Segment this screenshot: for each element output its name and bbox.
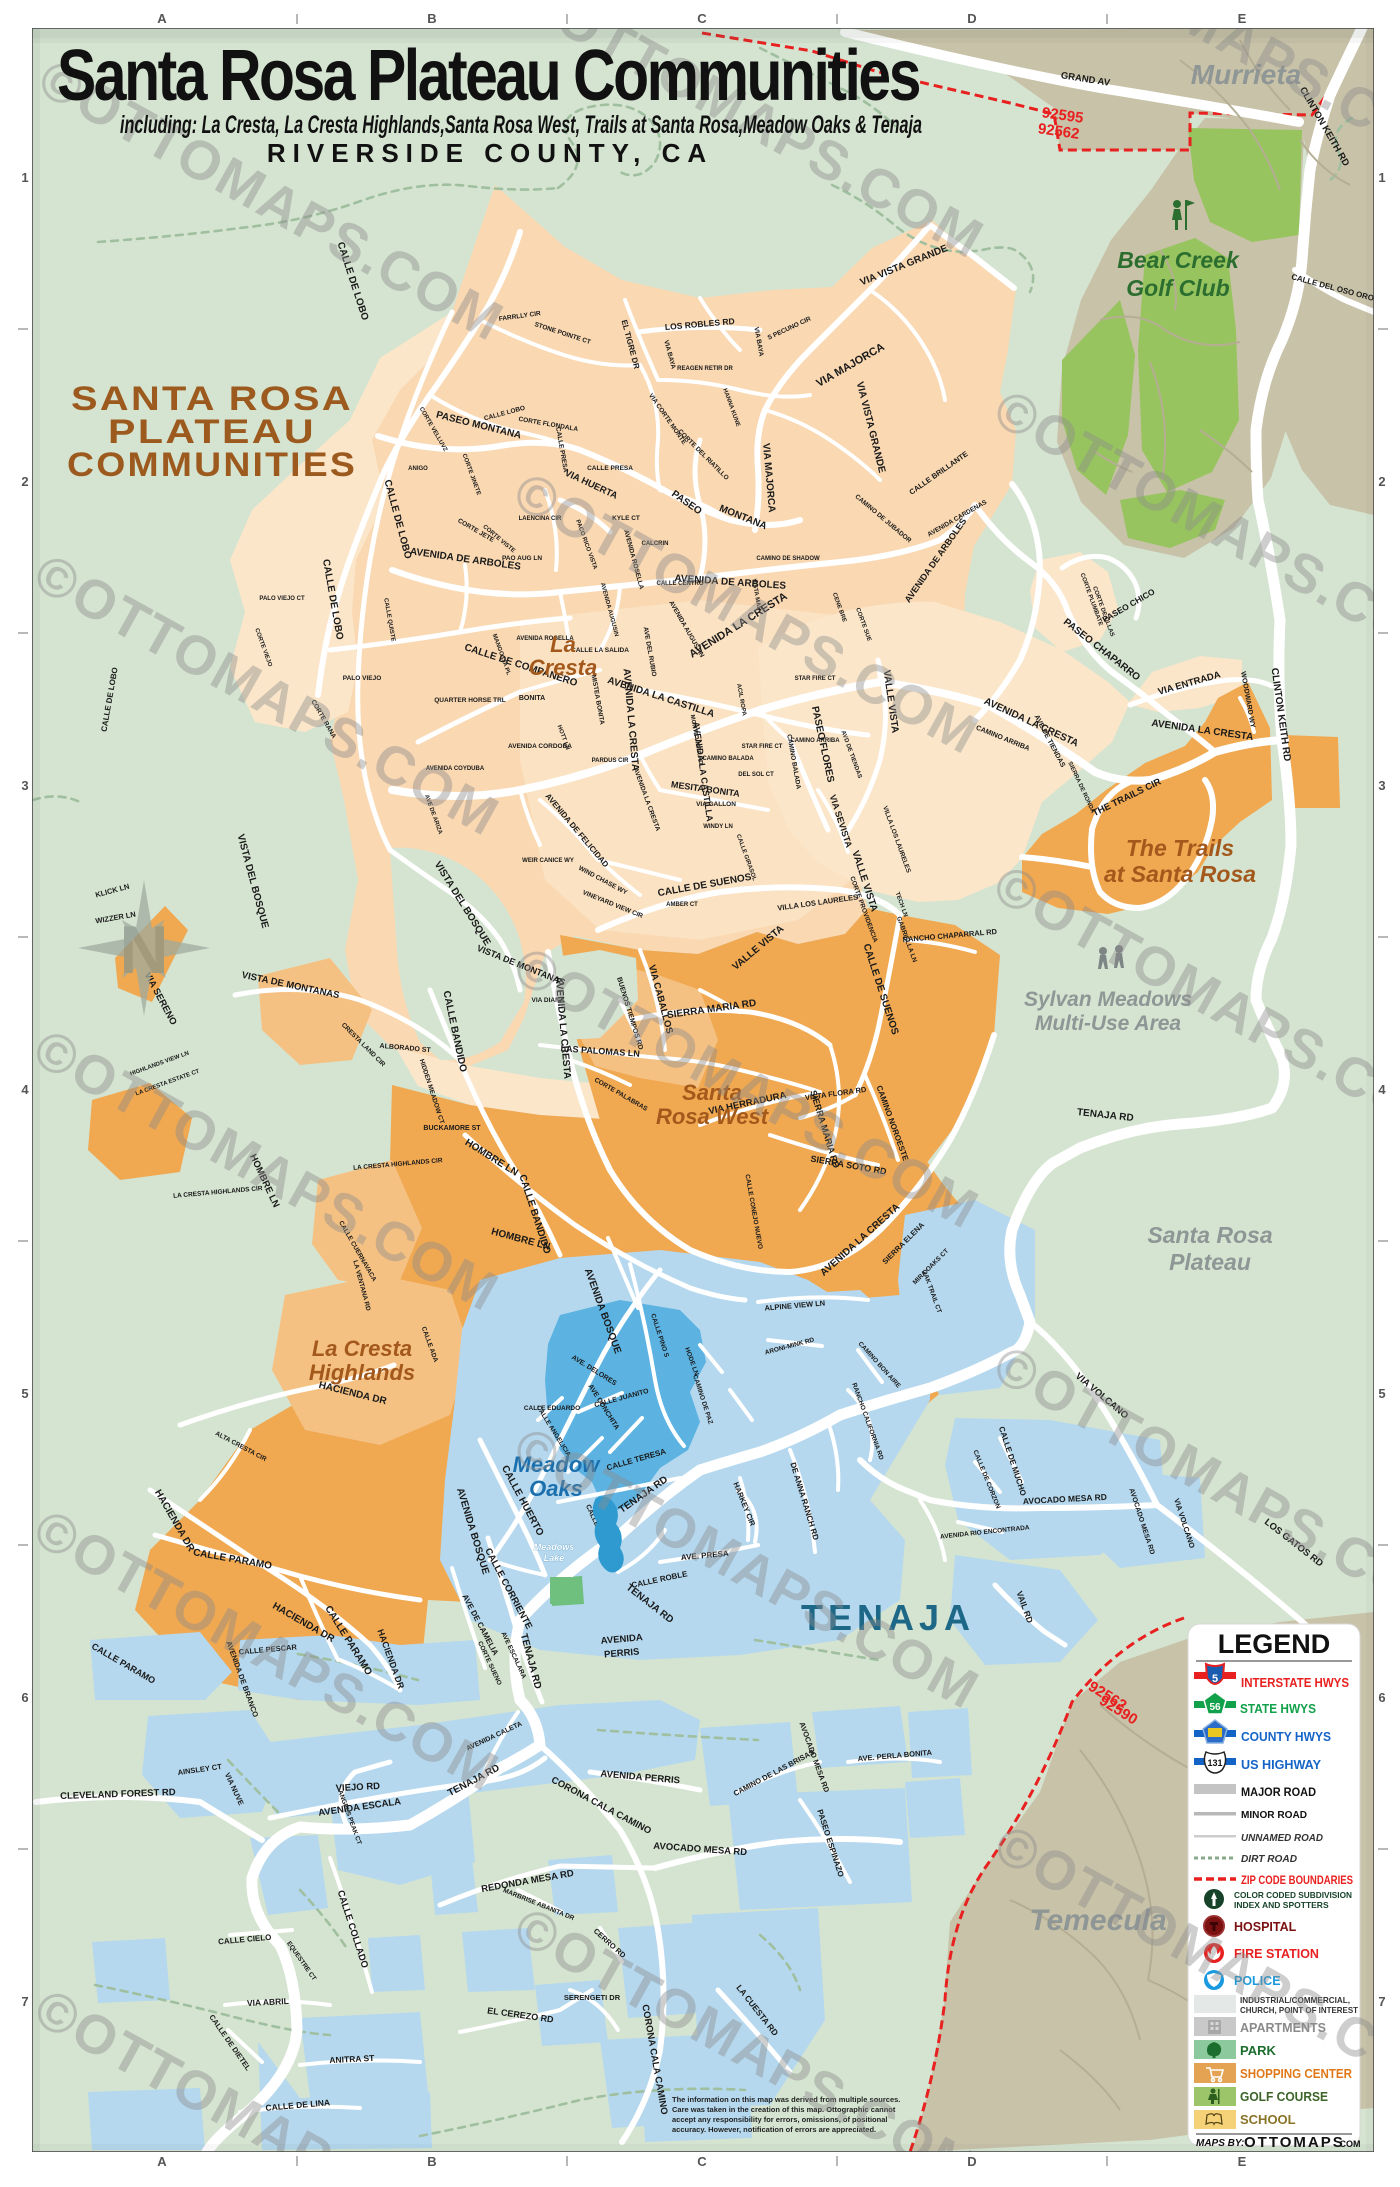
svg-text:Santa Rosa Plateau Communities: Santa Rosa Plateau Communities — [57, 36, 920, 116]
svg-text:CAMINO ARRIBA: CAMINO ARRIBA — [790, 738, 840, 744]
svg-text:PAO AUG LN: PAO AUG LN — [502, 555, 542, 562]
svg-text:1: 1 — [21, 170, 28, 185]
svg-text:N: N — [119, 912, 168, 988]
svg-text:7: 7 — [21, 1994, 28, 2009]
svg-text:CAMINO DE SHADOW: CAMINO DE SHADOW — [756, 556, 820, 562]
svg-text:A: A — [157, 11, 167, 26]
svg-text:STAR FIRE CT: STAR FIRE CT — [742, 744, 783, 750]
svg-text:WEIR CANICE WY: WEIR CANICE WY — [522, 858, 574, 864]
svg-text:ZIP CODE BOUNDARIES: ZIP CODE BOUNDARIES — [1241, 1875, 1353, 1887]
svg-text:PARDUS CIR: PARDUS CIR — [592, 758, 630, 764]
svg-text:MAJOR ROAD: MAJOR ROAD — [1241, 1787, 1316, 1799]
svg-text:7: 7 — [1378, 1994, 1385, 2009]
svg-text:PALO VIEJO: PALO VIEJO — [343, 675, 382, 682]
svg-text:C: C — [697, 11, 707, 26]
svg-text:REAGEN RETIR DR: REAGEN RETIR DR — [677, 366, 733, 372]
svg-text:HOSPITAL: HOSPITAL — [1234, 1920, 1297, 1934]
svg-text:E: E — [1238, 11, 1247, 26]
svg-text:COLOR CODED SUBDIVISION: COLOR CODED SUBDIVISION — [1234, 1890, 1352, 1900]
svg-text:GOLF COURSE: GOLF COURSE — [1240, 2090, 1328, 2104]
svg-text:Highlands: Highlands — [309, 1360, 415, 1385]
svg-text:Multi-Use Area: Multi-Use Area — [1035, 1012, 1182, 1035]
svg-text:La Cresta: La Cresta — [312, 1336, 412, 1361]
svg-text:CAMINO BALADA: CAMINO BALADA — [702, 756, 754, 762]
svg-text:LEGEND: LEGEND — [1218, 1629, 1331, 1659]
svg-text:PARK: PARK — [1240, 2043, 1276, 2058]
svg-text:4: 4 — [1378, 1082, 1386, 1097]
svg-text:E: E — [1238, 2154, 1247, 2169]
svg-text:6: 6 — [1378, 1690, 1385, 1705]
svg-text:56: 56 — [1209, 1702, 1221, 1713]
svg-text:DEL SOL CT: DEL SOL CT — [738, 772, 774, 778]
svg-text:6: 6 — [21, 1690, 28, 1705]
svg-text:1: 1 — [1378, 170, 1385, 185]
svg-text:3: 3 — [1378, 778, 1385, 793]
svg-text:5: 5 — [1378, 1386, 1385, 1401]
svg-text:UNNAMED ROAD: UNNAMED ROAD — [1241, 1832, 1323, 1844]
svg-text:B: B — [427, 11, 436, 26]
svg-text:D: D — [967, 2154, 976, 2169]
svg-text:5: 5 — [21, 1386, 28, 1401]
svg-text:Cresta: Cresta — [529, 655, 597, 680]
svg-text:COMMUNITIES: COMMUNITIES — [67, 446, 357, 484]
svg-text:CALLE EDUARDO: CALLE EDUARDO — [524, 1405, 580, 1412]
svg-text:including: La Cresta, La Crest: including: La Cresta, La Cresta Highland… — [120, 111, 922, 139]
svg-text:RIVERSIDE COUNTY, CA: RIVERSIDE COUNTY, CA — [267, 138, 713, 168]
svg-text:BUCKAMORE ST: BUCKAMORE ST — [423, 1125, 481, 1132]
svg-text:C: C — [697, 2154, 707, 2169]
svg-text:131: 131 — [1207, 1758, 1222, 1768]
svg-text:COUNTY HWYS: COUNTY HWYS — [1241, 1730, 1331, 1744]
svg-text:3: 3 — [21, 778, 28, 793]
svg-text:5: 5 — [1212, 1673, 1218, 1685]
svg-text:at Santa Rosa: at Santa Rosa — [1104, 861, 1256, 887]
svg-text:Santa Rosa: Santa Rosa — [1147, 1222, 1272, 1248]
svg-text:Lake: Lake — [544, 1553, 565, 1563]
svg-text:INDEX AND SPOTTERS: INDEX AND SPOTTERS — [1234, 1900, 1329, 1910]
svg-text:Bear Creek: Bear Creek — [1117, 247, 1240, 273]
svg-text:BONITA: BONITA — [519, 695, 545, 702]
svg-text:PALO VIEJO CT: PALO VIEJO CT — [259, 596, 305, 602]
svg-text:AMBER CT: AMBER CT — [666, 902, 698, 908]
svg-text:Golf Club: Golf Club — [1126, 275, 1229, 301]
svg-text:B: B — [427, 2154, 436, 2169]
svg-text:The Trails: The Trails — [1126, 835, 1234, 861]
svg-text:D: D — [967, 11, 976, 26]
svg-text:DIRT ROAD: DIRT ROAD — [1241, 1853, 1297, 1865]
svg-text:Plateau: Plateau — [1169, 1249, 1251, 1275]
svg-text:SCHOOL: SCHOOL — [1240, 2112, 1296, 2127]
svg-text:QUARTER HORSE TRL: QUARTER HORSE TRL — [434, 697, 506, 704]
svg-text:2: 2 — [1378, 474, 1385, 489]
svg-text:2: 2 — [21, 474, 28, 489]
svg-text:VIA GALLON: VIA GALLON — [696, 801, 736, 808]
svg-text:La: La — [550, 632, 576, 657]
svg-text:STATE HWYS: STATE HWYS — [1240, 1702, 1316, 1716]
svg-text:Meadows: Meadows — [534, 1542, 575, 1552]
svg-text:CALLE LA SALIDA: CALLE LA SALIDA — [571, 647, 629, 654]
svg-text:WINDY LN: WINDY LN — [703, 824, 733, 830]
svg-text:INTERSTATE HWYS: INTERSTATE HWYS — [1241, 1676, 1349, 1690]
svg-text:MINOR ROAD: MINOR ROAD — [1241, 1809, 1307, 1821]
svg-text:4: 4 — [21, 1082, 29, 1097]
svg-text:SHOPPING CENTER: SHOPPING CENTER — [1240, 2067, 1352, 2081]
svg-text:CALLE PRESA: CALLE PRESA — [587, 465, 633, 472]
svg-text:US HIGHWAY: US HIGHWAY — [1241, 1758, 1322, 1772]
svg-text:ANIGO: ANIGO — [408, 466, 428, 472]
svg-text:A: A — [157, 2154, 167, 2169]
